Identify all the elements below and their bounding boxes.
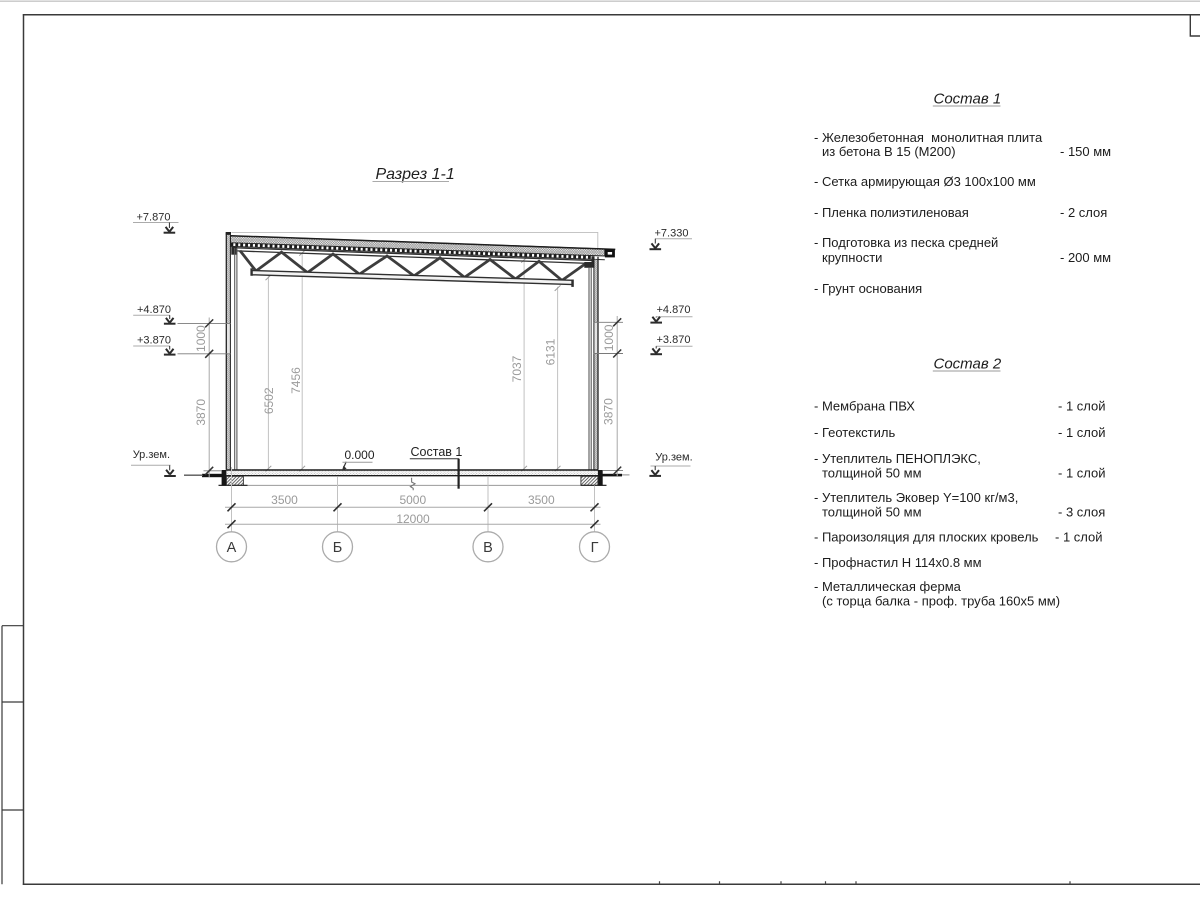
svg-text:- 1 слой: - 1 слой: [1058, 399, 1106, 414]
svg-text:+3.870: +3.870: [657, 334, 691, 346]
svg-text:- Грунт основания: - Грунт основания: [814, 281, 922, 296]
svg-text:В: В: [483, 540, 493, 556]
svg-text:- Металлическая ферма: - Металлическая ферма: [814, 579, 962, 594]
svg-text:- Мембрана ПВХ: - Мембрана ПВХ: [814, 399, 915, 414]
svg-text:- Профнастил Н 114х0.8 мм: - Профнастил Н 114х0.8 мм: [814, 555, 982, 570]
svg-text:7456: 7456: [289, 367, 303, 394]
svg-text:- Подготовка из песка средней: - Подготовка из песка средней: [814, 235, 998, 250]
svg-text:- Утеплитель ПЕНОПЛЭКС,: - Утеплитель ПЕНОПЛЭКС,: [814, 451, 981, 466]
svg-text:Ур.зем.: Ур.зем.: [655, 451, 692, 463]
svg-text:3870: 3870: [194, 399, 208, 426]
svg-text:из бетона В 15 (М200): из бетона В 15 (М200): [822, 144, 956, 159]
svg-text:Г: Г: [591, 540, 599, 556]
svg-text:3500: 3500: [528, 493, 555, 507]
svg-text:3870: 3870: [601, 398, 615, 425]
svg-text:Б: Б: [333, 540, 343, 556]
svg-text:- Геотекстиль: - Геотекстиль: [814, 425, 895, 440]
svg-text:6131: 6131: [544, 338, 558, 365]
svg-text:- 1 слой: - 1 слой: [1058, 425, 1106, 440]
svg-text:+4.870: +4.870: [657, 304, 691, 316]
svg-text:Разрез 1-1: Разрез 1-1: [376, 166, 455, 183]
svg-text:- 150 мм: - 150 мм: [1060, 144, 1111, 159]
svg-text:толщиной 50 мм: толщиной 50 мм: [822, 505, 922, 520]
svg-text:Состав 1: Состав 1: [934, 91, 1002, 108]
svg-text:6502: 6502: [262, 387, 276, 414]
svg-text:- Пароизоляция для плоских кро: - Пароизоляция для плоских кровель: [814, 530, 1039, 545]
svg-text:- Железобетонная монолитная п: - Железобетонная монолитная плита: [814, 130, 1043, 145]
svg-text:толщиной 50 мм: толщиной 50 мм: [822, 466, 922, 481]
svg-text:1000: 1000: [194, 325, 208, 352]
svg-text:- 1 слой: - 1 слой: [1055, 530, 1103, 545]
svg-text:+4.870: +4.870: [137, 304, 171, 316]
svg-text:+7.330: +7.330: [655, 228, 689, 240]
svg-text:+7.870: +7.870: [137, 212, 171, 224]
svg-text:+3.870: +3.870: [137, 335, 171, 347]
svg-text:7037: 7037: [510, 355, 524, 382]
svg-text:12000: 12000: [396, 512, 430, 526]
svg-text:- 200 мм: - 200 мм: [1060, 250, 1111, 265]
svg-text:- Сетка армирующая Ø3 100х100: - Сетка армирующая Ø3 100х100 мм: [814, 174, 1036, 189]
svg-text:1000: 1000: [602, 324, 616, 351]
svg-text:- 3 слоя: - 3 слоя: [1058, 505, 1105, 520]
svg-text:Состав 2: Состав 2: [934, 356, 1002, 373]
svg-text:А: А: [227, 540, 237, 556]
svg-text:- Утеплитель Эковер Y=100 кг/м: - Утеплитель Эковер Y=100 кг/м3,: [814, 490, 1018, 505]
svg-text:Ур.зем.: Ур.зем.: [133, 449, 170, 461]
svg-text:крупности: крупности: [822, 250, 882, 265]
svg-text:3500: 3500: [271, 493, 298, 507]
svg-text:5000: 5000: [399, 493, 426, 507]
svg-text:- 1 слой: - 1 слой: [1058, 466, 1106, 481]
svg-text:- 2 слоя: - 2 слоя: [1060, 205, 1107, 220]
svg-text:(с торца балка - проф. труба 1: (с торца балка - проф. труба 160х5 мм): [822, 594, 1060, 609]
svg-text:- Пленка полиэтиленовая: - Пленка полиэтиленовая: [814, 205, 969, 220]
svg-text:0.000: 0.000: [345, 448, 375, 462]
svg-text:Состав 1: Состав 1: [411, 445, 463, 459]
